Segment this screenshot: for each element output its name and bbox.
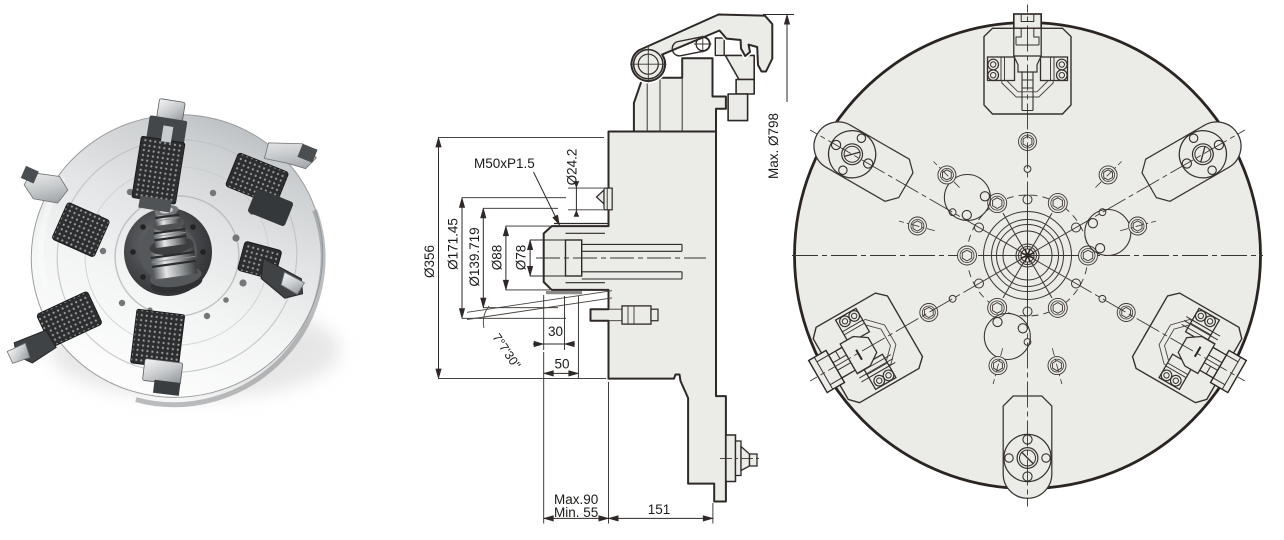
svg-text:151: 151 <box>648 502 671 517</box>
svg-text:Ø171.45: Ø171.45 <box>446 218 461 270</box>
svg-text:30: 30 <box>548 324 563 339</box>
svg-text:Ø139.719: Ø139.719 <box>467 227 482 286</box>
svg-text:Min. 55: Min. 55 <box>554 505 598 520</box>
svg-text:Ø356: Ø356 <box>422 245 437 278</box>
svg-text:50: 50 <box>554 357 569 372</box>
svg-text:M50xP1.5: M50xP1.5 <box>474 156 535 171</box>
svg-text:7°7'30": 7°7'30" <box>490 331 524 372</box>
svg-text:Ø88: Ø88 <box>489 245 504 271</box>
svg-text:Ø78: Ø78 <box>514 245 529 271</box>
svg-text:Max. Ø798: Max. Ø798 <box>766 113 781 179</box>
svg-text:Ø24.2: Ø24.2 <box>564 149 579 186</box>
